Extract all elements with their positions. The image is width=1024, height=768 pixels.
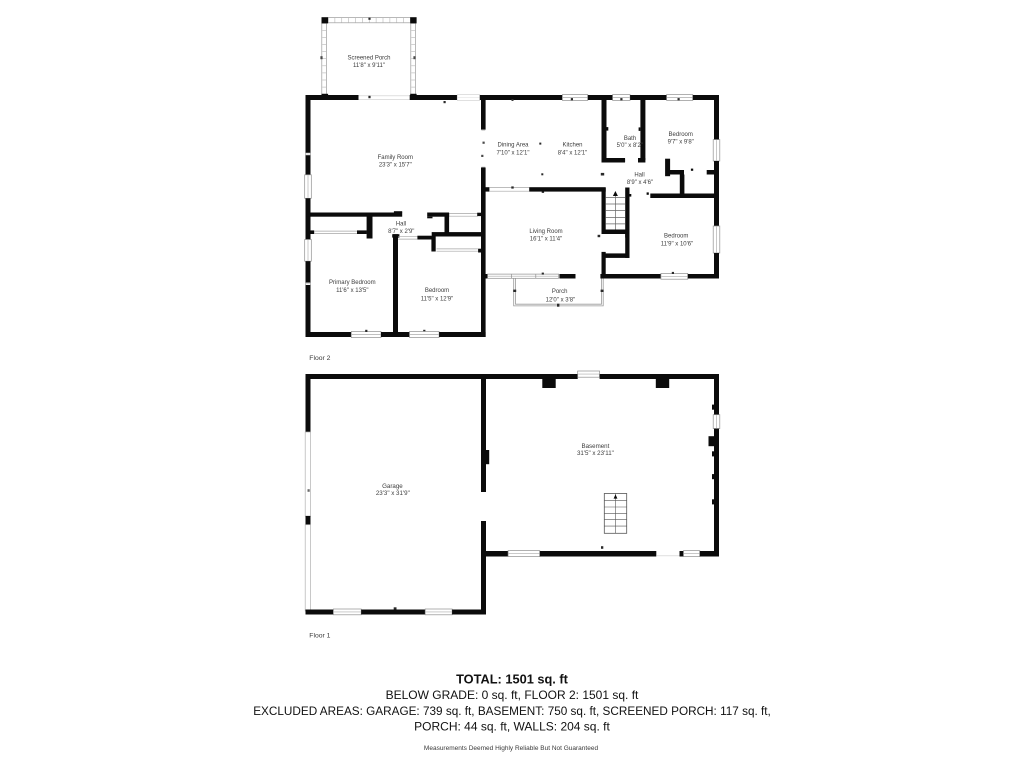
svg-text:Floor 1: Floor 1 (309, 632, 330, 639)
svg-text:BELOW GRADE: 0 sq. ft, FLOOR 2: BELOW GRADE: 0 sq. ft, FLOOR 2: 1501 sq.… (386, 688, 639, 702)
svg-text:12'0" x 3'8": 12'0" x 3'8" (546, 297, 576, 303)
svg-text:8'9" x 4'6": 8'9" x 4'6" (627, 180, 653, 186)
svg-text:Family Room: Family Room (378, 155, 413, 161)
svg-text:5'0" x 8'2": 5'0" x 8'2" (617, 143, 643, 149)
svg-text:16'1" x 11'4": 16'1" x 11'4" (530, 236, 562, 242)
svg-text:8'7" x 2'9": 8'7" x 2'9" (388, 229, 414, 235)
svg-text:TOTAL: 1501 sq. ft: TOTAL: 1501 sq. ft (456, 671, 569, 686)
svg-text:Living Room: Living Room (529, 229, 562, 235)
svg-text:11'8" x 9'11": 11'8" x 9'11" (353, 63, 385, 69)
svg-text:Floor 2: Floor 2 (309, 355, 330, 362)
svg-text:Dining Area: Dining Area (497, 143, 529, 149)
svg-text:Bedroom: Bedroom (425, 288, 449, 294)
svg-text:23'3" x 15'7": 23'3" x 15'7" (379, 163, 412, 169)
svg-text:11'6" x 13'5": 11'6" x 13'5" (336, 288, 368, 294)
svg-text:23'3" x 31'9": 23'3" x 31'9" (376, 490, 410, 497)
svg-text:11'5" x 12'9": 11'5" x 12'9" (421, 297, 453, 303)
svg-text:31'5" x 23'11": 31'5" x 23'11" (577, 450, 614, 457)
svg-text:8'4" x 12'1": 8'4" x 12'1" (558, 150, 588, 156)
svg-text:Primary Bedroom: Primary Bedroom (329, 280, 376, 286)
svg-text:Hall: Hall (396, 221, 406, 227)
svg-text:Garage: Garage (382, 483, 403, 490)
svg-text:EXCLUDED AREAS: GARAGE: 739 sq: EXCLUDED AREAS: GARAGE: 739 sq. ft, BASE… (253, 705, 771, 718)
svg-text:Bath: Bath (624, 136, 636, 142)
svg-text:11'9" x 10'6": 11'9" x 10'6" (661, 242, 693, 248)
svg-text:Basement: Basement (581, 443, 609, 450)
svg-text:Hall: Hall (634, 172, 644, 178)
svg-text:Kitchen: Kitchen (562, 143, 582, 149)
svg-text:9'7" x 9'8": 9'7" x 9'8" (668, 140, 694, 146)
svg-text:PORCH: 44 sq. ft, WALLS: 204 s: PORCH: 44 sq. ft, WALLS: 204 sq. ft (414, 719, 610, 733)
svg-text:Porch: Porch (552, 289, 568, 295)
svg-text:7'10" x 12'1": 7'10" x 12'1" (497, 150, 530, 156)
svg-text:Bedroom: Bedroom (669, 132, 693, 138)
svg-text:Measurements Deemed Highly Rel: Measurements Deemed Highly Reliable But … (424, 745, 599, 752)
svg-text:Screened Porch: Screened Porch (347, 55, 390, 61)
svg-text:Bedroom: Bedroom (664, 234, 688, 240)
